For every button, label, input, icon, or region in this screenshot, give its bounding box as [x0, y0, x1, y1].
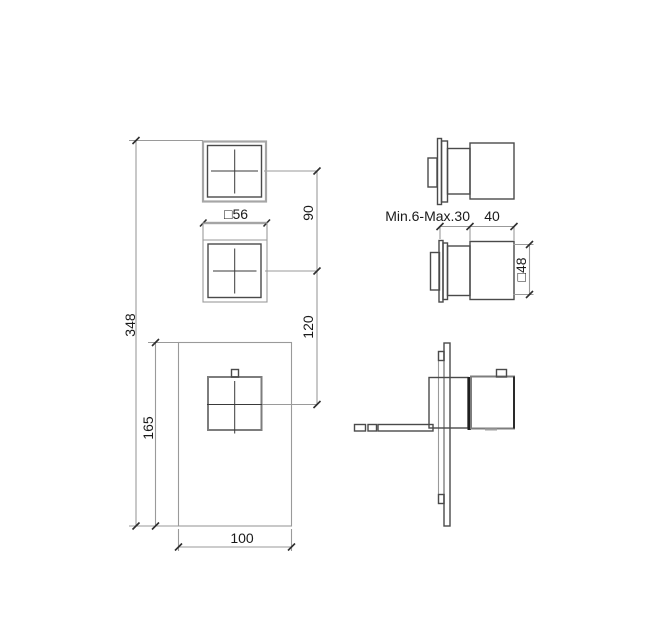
handle-knob	[471, 377, 514, 429]
handle-neck	[448, 149, 471, 195]
top-handle-front	[203, 142, 266, 202]
handle-side-view-top	[428, 139, 514, 205]
wall-stub	[431, 253, 440, 291]
handle-neck	[448, 246, 471, 296]
valve-assembly-side-view	[355, 343, 515, 526]
valve-body	[429, 378, 468, 429]
dim-label-lower-spacing: 120	[300, 315, 316, 339]
dimension-total-height: 348	[122, 137, 203, 530]
front-view: 348 165 100 90 1	[122, 137, 321, 551]
dim-label-plate-height: 165	[140, 416, 156, 440]
mount-clip-bottom	[439, 495, 445, 504]
dimension-plate-width: 100	[175, 529, 295, 551]
wall-plate-front	[179, 343, 292, 527]
dim-label-total-height: 348	[122, 313, 138, 337]
dim-label-plate-width: 100	[230, 530, 254, 546]
dim-label-base-size: □48	[513, 257, 529, 281]
dimension-base-size: □48	[513, 241, 534, 298]
drawing-canvas: 348 165 100 90 1	[0, 0, 658, 642]
wall-stub	[428, 158, 437, 187]
pipe-fitting-1	[355, 425, 366, 432]
dimension-depth-chain	[437, 223, 518, 241]
dim-label-upper-spacing: 90	[300, 205, 316, 221]
inlet-pipe	[378, 425, 433, 432]
mount-clip-top	[439, 352, 445, 361]
handle-side-view-dimensioned: Min.6-Max.30 40 □48	[385, 208, 533, 302]
dim-label-handle-size: □56	[224, 206, 248, 222]
dimension-plate-height: 165	[140, 339, 179, 530]
handle-knob	[470, 143, 514, 199]
plate-side	[444, 343, 450, 526]
middle-handle-front: □56	[200, 206, 270, 302]
flange-front	[442, 141, 448, 202]
dim-label-handle-depth: 40	[484, 208, 500, 224]
dim-label-mount-depth: Min.6-Max.30	[385, 208, 470, 224]
pipe-fitting-2	[368, 425, 377, 432]
handle-knob	[470, 242, 514, 300]
handle-nub	[232, 370, 239, 378]
technical-drawing: 348 165 100 90 1	[0, 0, 658, 642]
